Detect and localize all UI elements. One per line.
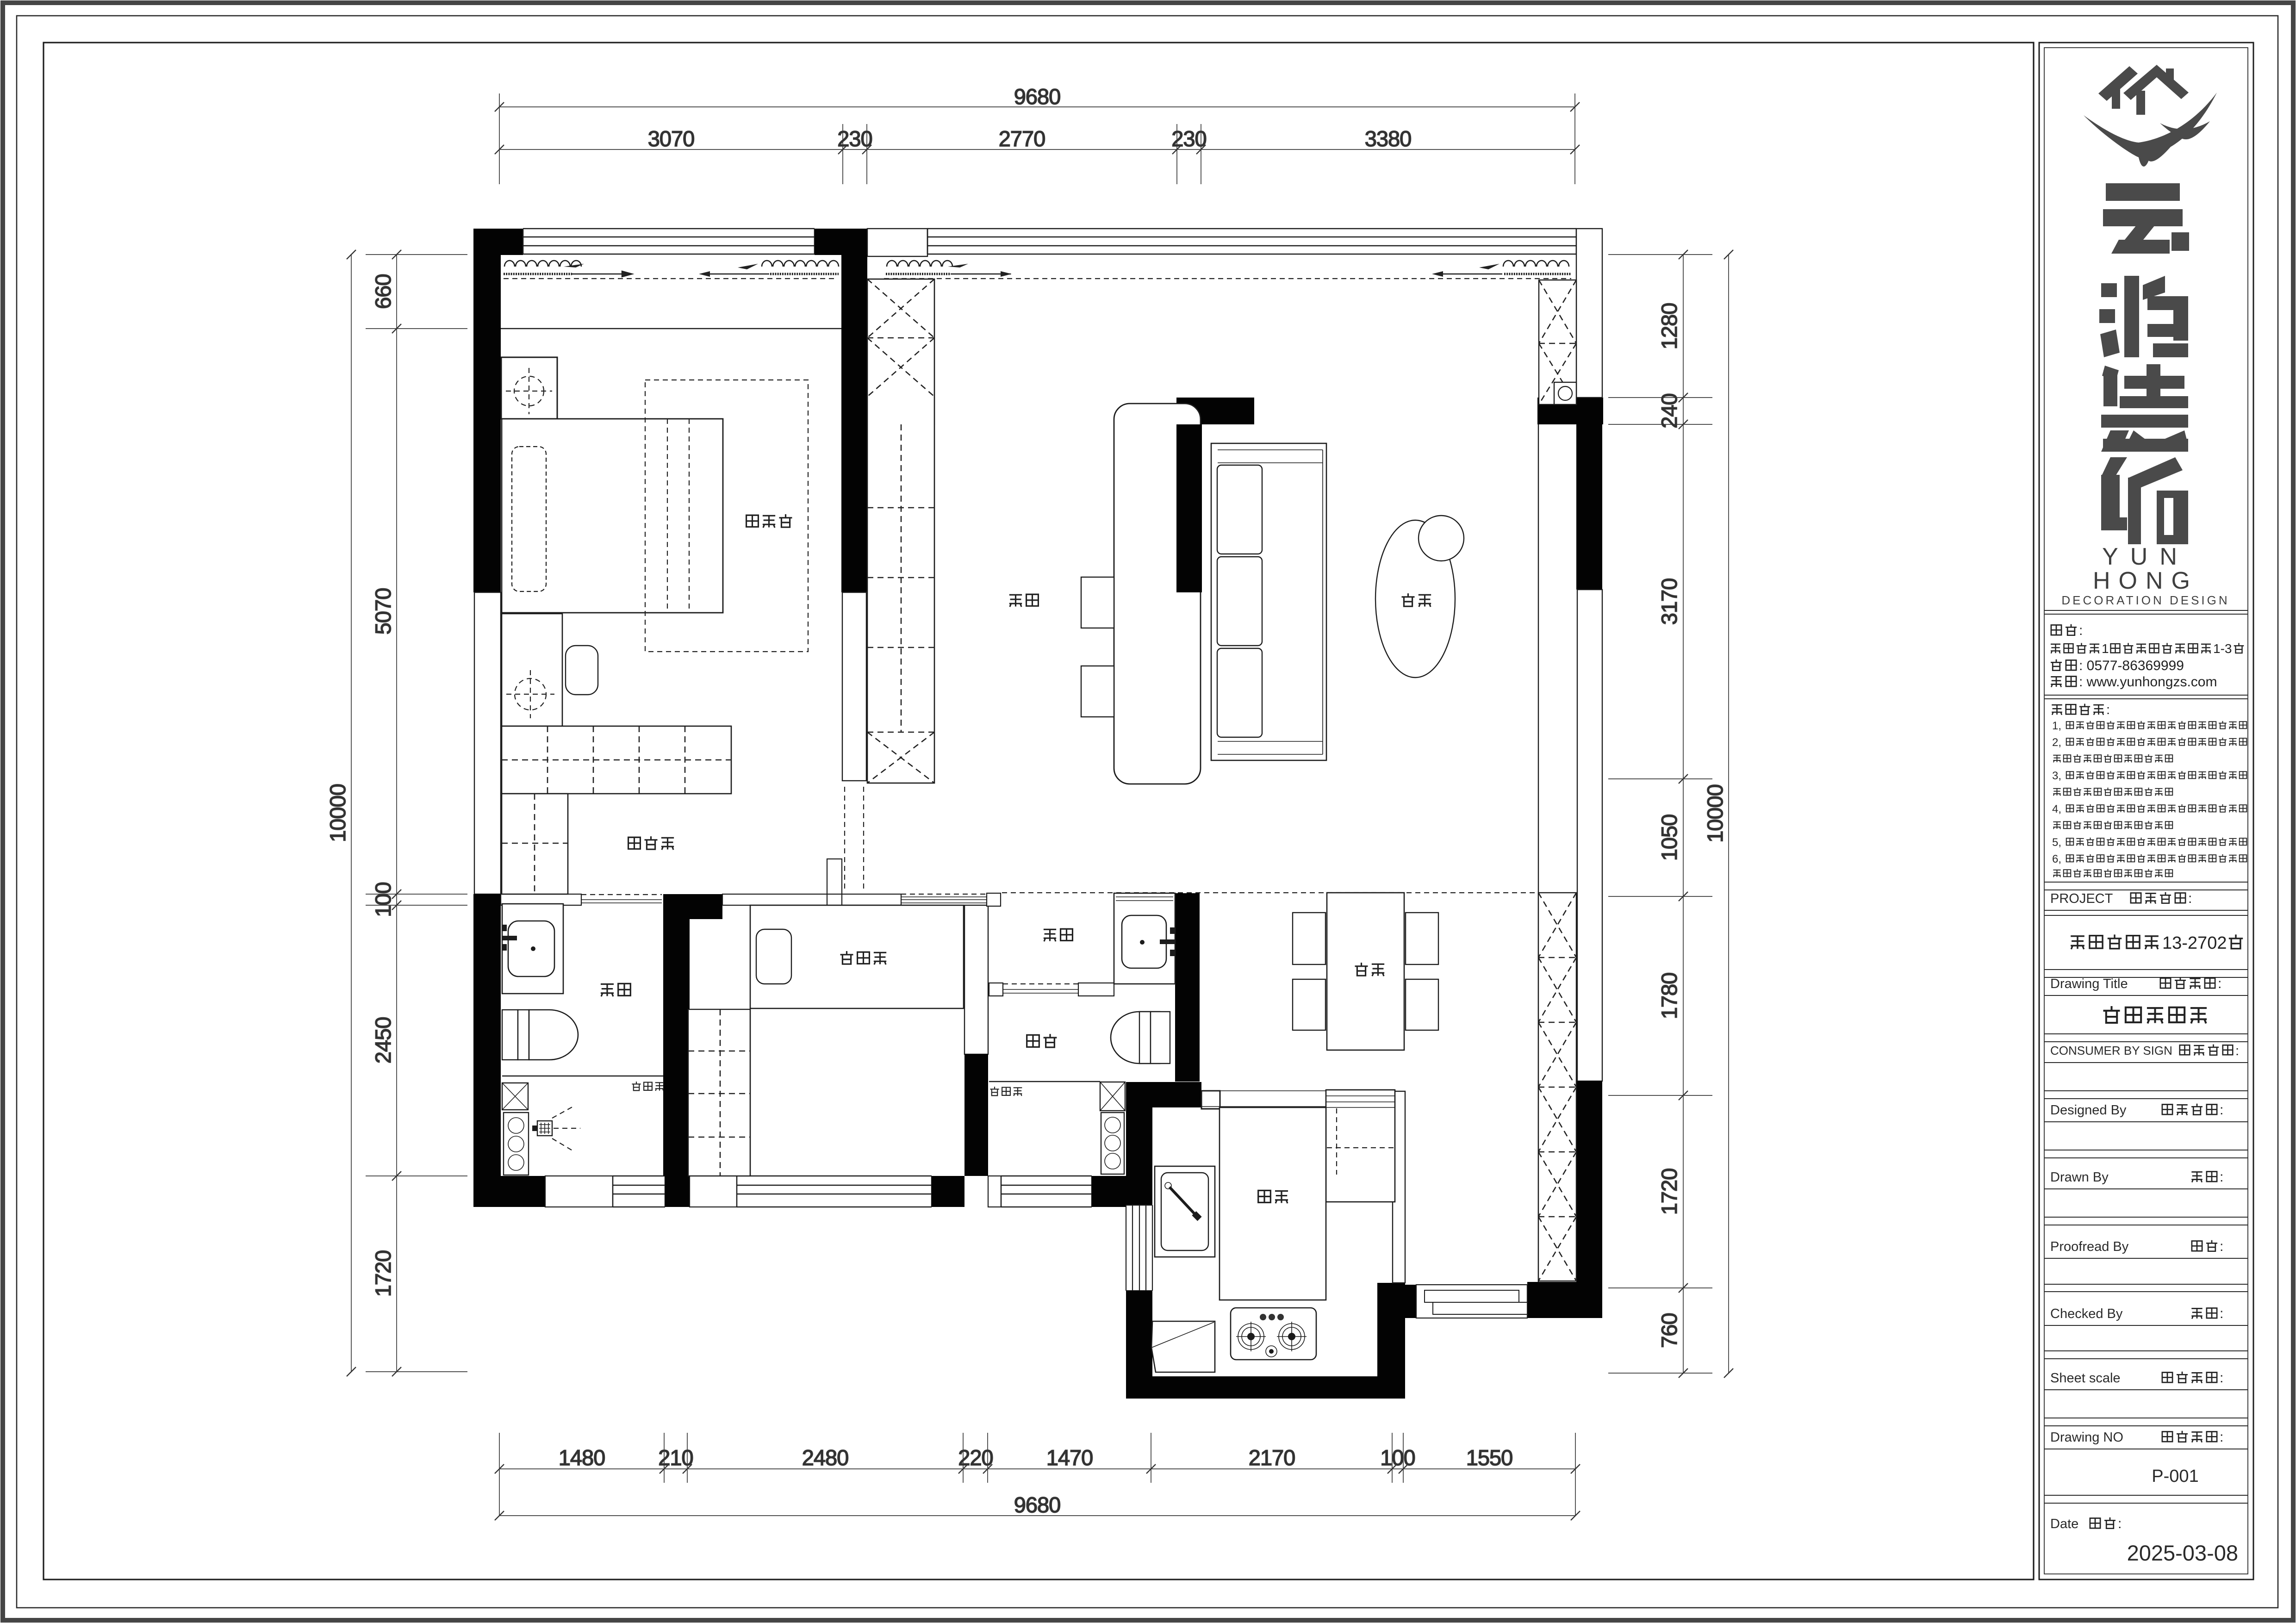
svg-text:: www.yunhongzs.com: : www.yunhongzs.com [2079, 674, 2217, 690]
svg-text:1720: 1720 [371, 1250, 395, 1297]
svg-text:: 0577-86369999: : 0577-86369999 [2079, 658, 2184, 673]
svg-text:1720: 1720 [1657, 1169, 1681, 1215]
svg-text:P-001: P-001 [2152, 1467, 2198, 1486]
svg-text:3070: 3070 [648, 126, 695, 151]
svg-text:Drawn By: Drawn By [2050, 1170, 2109, 1185]
svg-text:PROJECT: PROJECT [2050, 891, 2113, 906]
svg-text:2170: 2170 [1249, 1445, 1295, 1470]
svg-text:210: 210 [658, 1445, 693, 1470]
svg-text::: : [2220, 1239, 2223, 1254]
svg-text::: : [2218, 976, 2221, 991]
svg-text::: : [2220, 1102, 2223, 1118]
svg-text::: : [2235, 1044, 2239, 1058]
svg-text::: : [2220, 1430, 2223, 1445]
svg-text:3170: 3170 [1657, 578, 1681, 625]
svg-text:100: 100 [1380, 1445, 1415, 1470]
svg-text:220: 220 [958, 1445, 993, 1470]
svg-text:230: 230 [837, 126, 872, 151]
svg-text:5070: 5070 [371, 588, 395, 635]
svg-text:1,: 1, [2052, 720, 2061, 732]
svg-text:660: 660 [371, 274, 395, 309]
svg-text:1480: 1480 [559, 1445, 605, 1470]
svg-text:Date: Date [2050, 1517, 2078, 1531]
svg-text:2,: 2, [2052, 736, 2061, 749]
svg-text:3380: 3380 [1365, 126, 1412, 151]
svg-text:10000: 10000 [325, 784, 350, 842]
svg-text:YUN: YUN [2102, 543, 2189, 570]
svg-text:CONSUMER BY SIGN: CONSUMER BY SIGN [2050, 1044, 2172, 1057]
svg-text:4,: 4, [2052, 803, 2061, 815]
svg-text::: : [2079, 623, 2083, 638]
svg-text:3,: 3, [2052, 770, 2061, 782]
svg-text::: : [2220, 1306, 2223, 1321]
svg-text:Drawing Title: Drawing Title [2050, 976, 2128, 991]
svg-text:760: 760 [1657, 1313, 1681, 1348]
svg-text:Sheet scale: Sheet scale [2050, 1371, 2121, 1386]
svg-text:2770: 2770 [999, 126, 1045, 151]
svg-text:Drawing NO: Drawing NO [2050, 1430, 2123, 1445]
svg-text::: : [2118, 1516, 2122, 1531]
svg-text:Designed By: Designed By [2050, 1103, 2127, 1118]
svg-text:1-3: 1-3 [2213, 641, 2232, 656]
svg-text:10000: 10000 [1703, 784, 1727, 843]
svg-text::: : [2188, 891, 2192, 906]
svg-text:2480: 2480 [802, 1445, 849, 1470]
svg-text:Checked By: Checked By [2050, 1306, 2123, 1321]
svg-text:2450: 2450 [371, 1017, 395, 1064]
svg-text:9680: 9680 [1014, 84, 1061, 109]
svg-text:230: 230 [1171, 126, 1206, 151]
svg-text:1: 1 [2102, 641, 2109, 656]
svg-text:Proofread By: Proofread By [2050, 1239, 2129, 1254]
svg-text::: : [2220, 1169, 2223, 1185]
svg-text:1280: 1280 [1657, 303, 1681, 350]
svg-text:240: 240 [1657, 393, 1681, 428]
svg-text:HONG: HONG [2093, 567, 2198, 594]
svg-text:6,: 6, [2052, 853, 2061, 865]
svg-text:13-2702: 13-2702 [2162, 933, 2227, 953]
svg-text::: : [2106, 703, 2110, 717]
svg-text:100: 100 [371, 882, 395, 917]
svg-text:DECORATION DESIGN: DECORATION DESIGN [2061, 593, 2229, 607]
svg-text:2025-03-08: 2025-03-08 [2127, 1541, 2238, 1565]
svg-text:5,: 5, [2052, 836, 2061, 849]
svg-text:1470: 1470 [1046, 1445, 1093, 1470]
svg-text::: : [2220, 1370, 2223, 1386]
svg-text:1050: 1050 [1657, 815, 1681, 861]
svg-text:1550: 1550 [1466, 1445, 1513, 1470]
svg-text:1780: 1780 [1657, 973, 1681, 1020]
svg-text:9680: 9680 [1014, 1492, 1061, 1517]
